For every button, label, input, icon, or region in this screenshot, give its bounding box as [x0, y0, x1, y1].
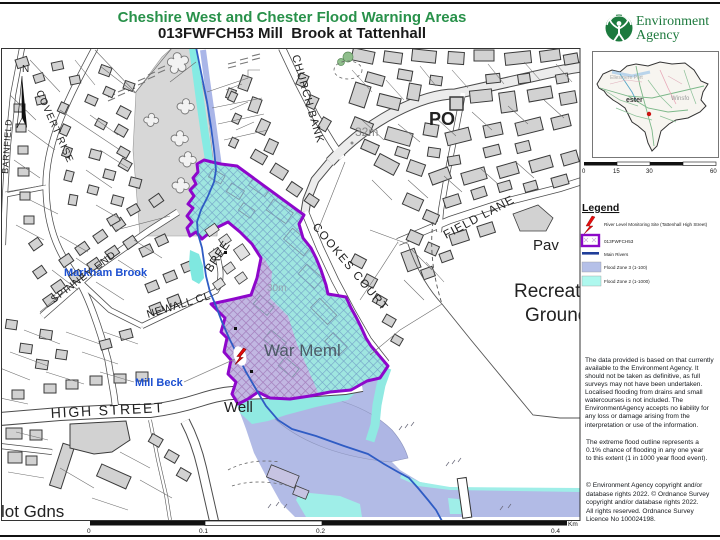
- svg-text:0.2: 0.2: [316, 528, 325, 535]
- svg-text:30: 30: [646, 169, 653, 175]
- svg-text:lot Gdns: lot Gdns: [1, 502, 64, 521]
- svg-text:Ellesmere Port: Ellesmere Port: [610, 75, 643, 81]
- svg-text:N: N: [22, 64, 29, 75]
- svg-text:Km: Km: [568, 521, 578, 528]
- svg-text:Pav: Pav: [533, 237, 559, 254]
- svg-text:60: 60: [710, 169, 717, 175]
- svg-text:0.4: 0.4: [551, 528, 560, 535]
- svg-text:Legend: Legend: [582, 202, 619, 214]
- svg-text:013FWFCH53: 013FWFCH53: [604, 239, 634, 244]
- svg-text:Main Rivers: Main Rivers: [604, 252, 629, 257]
- svg-text:30m: 30m: [267, 283, 286, 294]
- svg-text:32m: 32m: [355, 125, 378, 139]
- svg-text:ester: ester: [626, 97, 643, 104]
- svg-text:Mill Beck: Mill Beck: [135, 377, 184, 389]
- svg-text:Environment: Environment: [636, 14, 709, 29]
- svg-text:0: 0: [582, 169, 586, 175]
- svg-text:River Level Monitoring Site (T: River Level Monitoring Site (Tattenhall …: [604, 222, 708, 227]
- svg-text:Ground: Ground: [525, 305, 588, 326]
- svg-text:15: 15: [613, 169, 620, 175]
- svg-text:Agency: Agency: [636, 28, 680, 43]
- svg-text:Flood Zone 2 (1-1000): Flood Zone 2 (1-1000): [604, 279, 650, 284]
- svg-text:War Meml: War Meml: [264, 341, 341, 360]
- svg-text:Well: Well: [224, 399, 253, 416]
- svg-text:0.1: 0.1: [199, 528, 208, 535]
- svg-text:0: 0: [87, 528, 91, 535]
- svg-text:Flood Zone 3 (1-100): Flood Zone 3 (1-100): [604, 265, 648, 270]
- svg-text:Winsfo: Winsfo: [671, 96, 690, 102]
- svg-text:PO: PO: [429, 109, 455, 129]
